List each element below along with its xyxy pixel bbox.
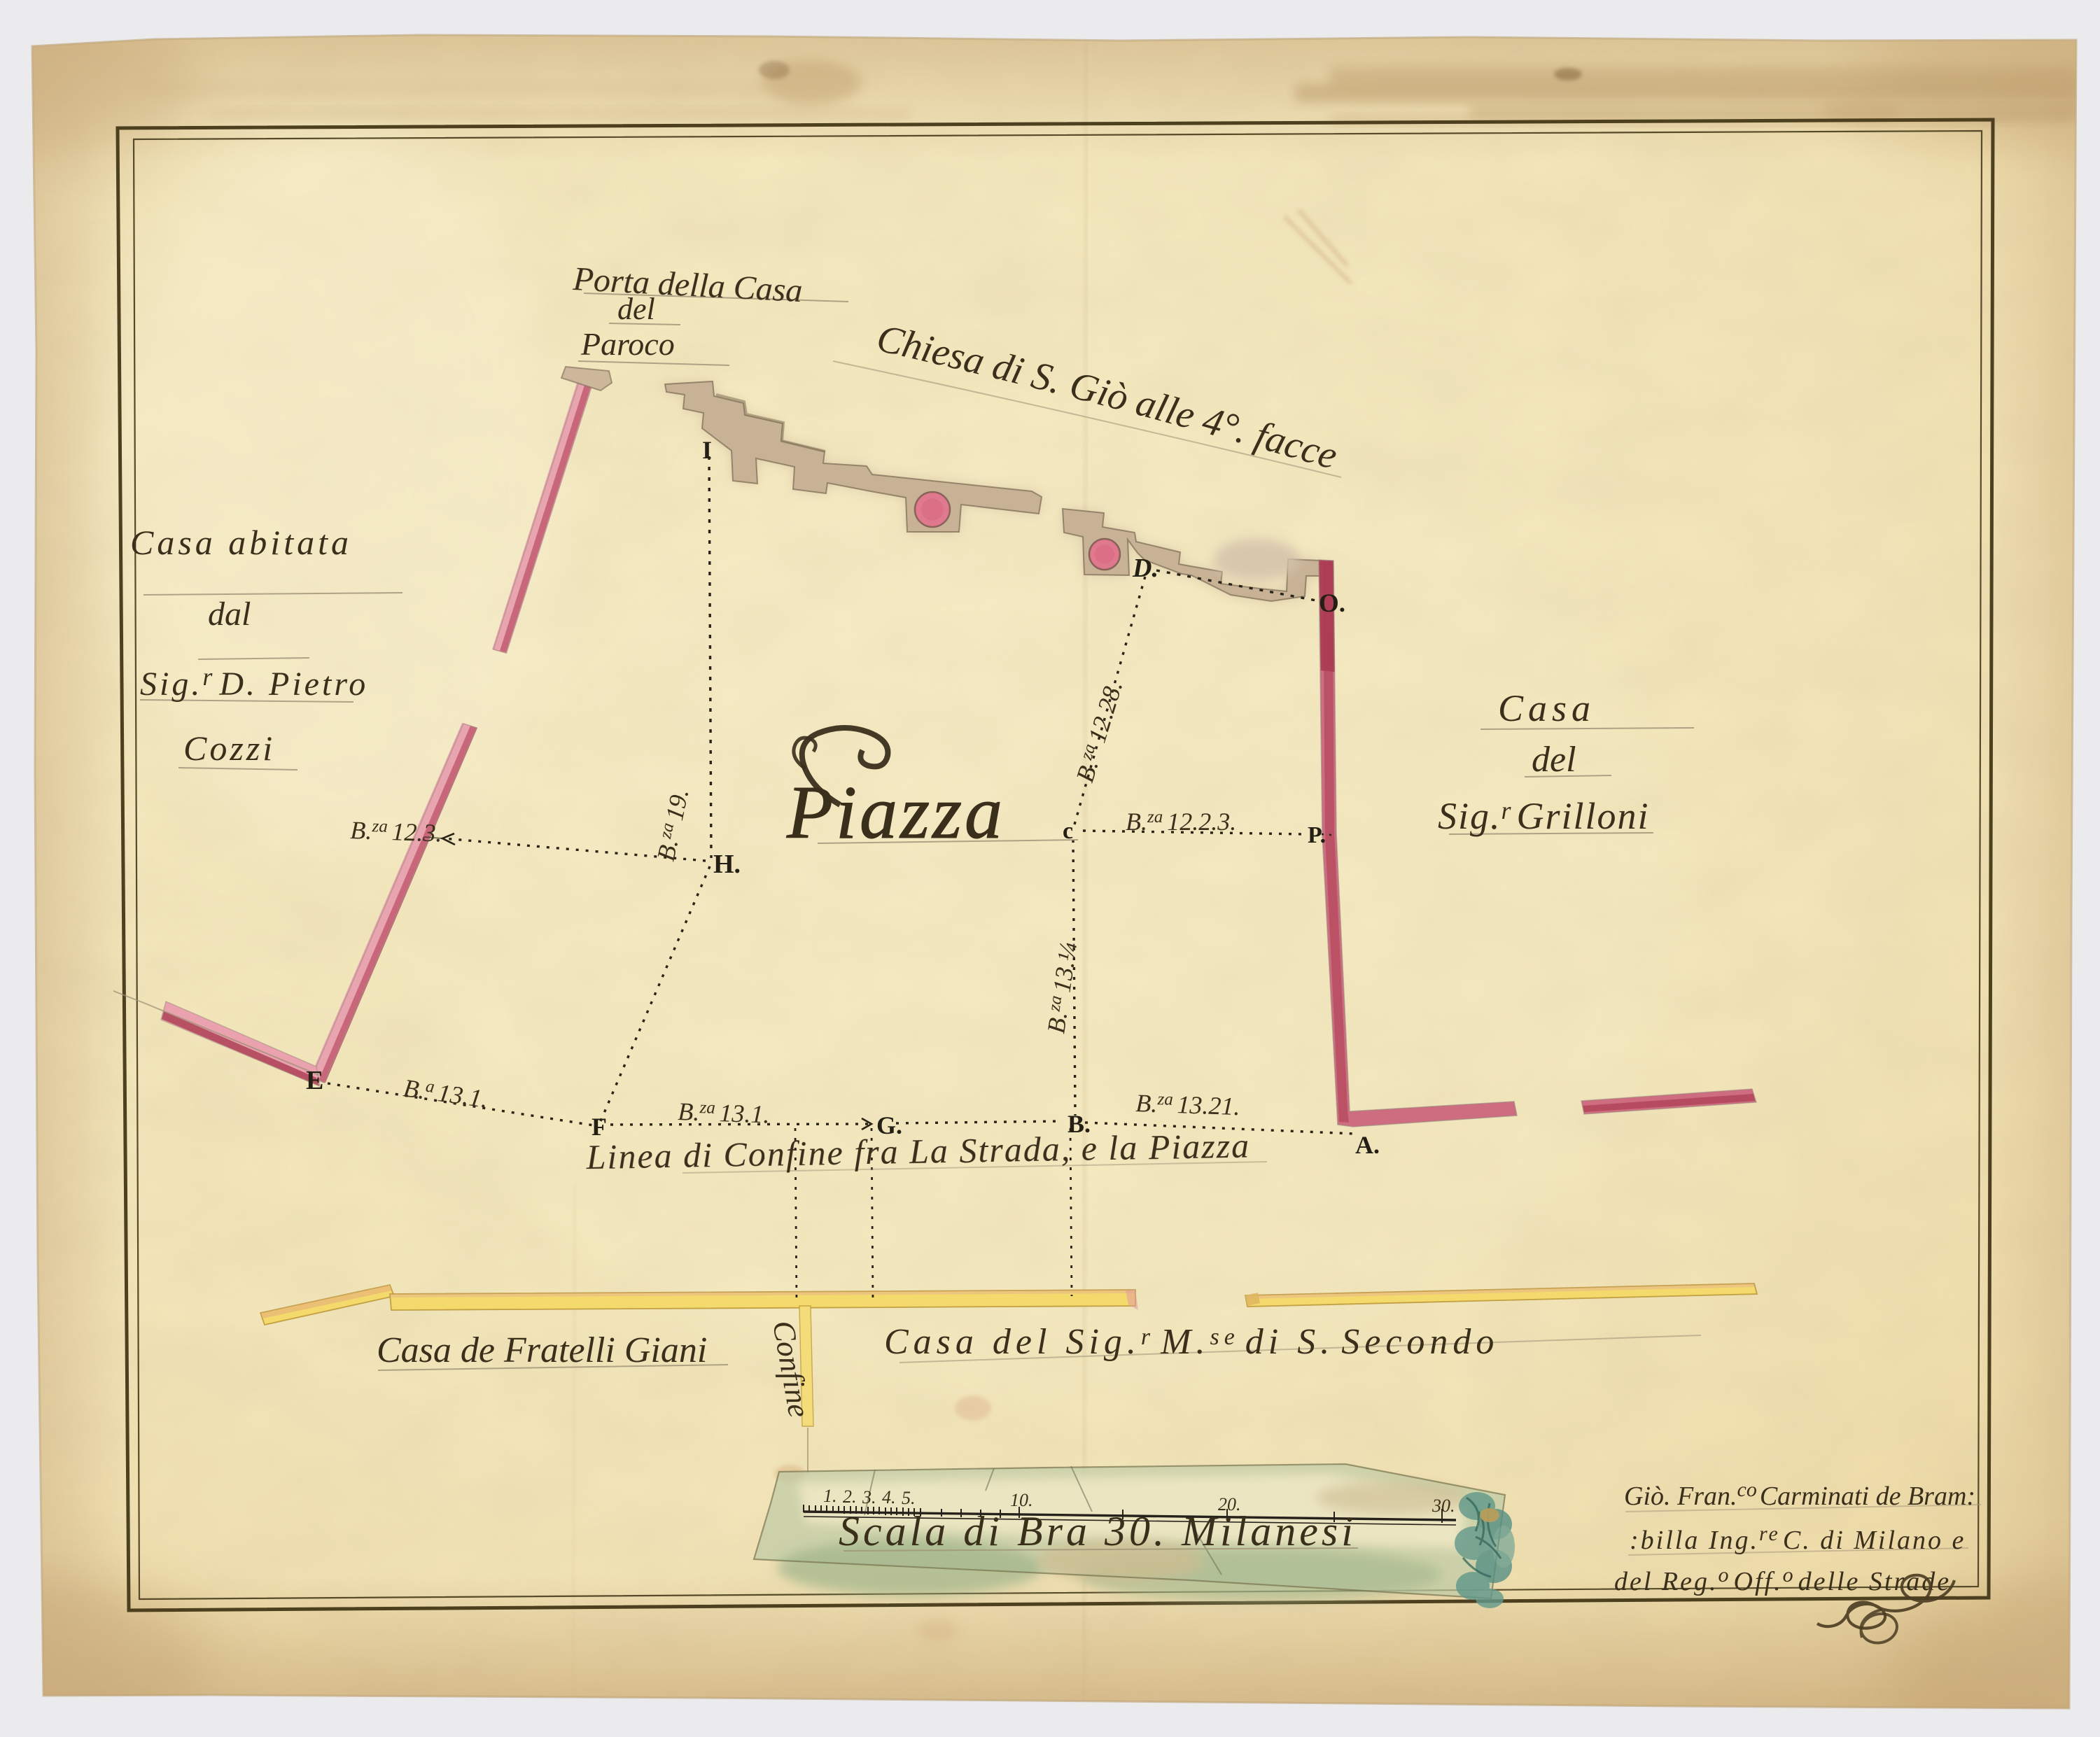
svg-text:dal: dal (208, 596, 251, 633)
svg-text:2.: 2. (843, 1486, 857, 1507)
svg-text:1.: 1. (823, 1486, 837, 1506)
svg-text:H.: H. (713, 850, 741, 879)
svg-text:Sig.rD. Pietro: Sig.rD. Pietro (140, 663, 368, 703)
svg-text:B.za12.2.3.: B.za12.2.3. (1126, 808, 1236, 836)
svg-text:4.: 4. (882, 1487, 896, 1507)
svg-text:P.: P. (1308, 822, 1326, 848)
svg-text:A.: A. (1355, 1131, 1380, 1159)
svg-text:10.: 10. (1010, 1490, 1033, 1510)
svg-text:30.: 30. (1431, 1496, 1455, 1516)
svg-text:B.za13.1.: B.za13.1. (678, 1097, 771, 1129)
svg-text:del: del (1532, 740, 1576, 780)
svg-text:Cozzi: Cozzi (183, 729, 275, 768)
svg-text:Casa del Sig.rM.sedi S.Secondo: Casa del Sig.rM.sedi S.Secondo (884, 1322, 1499, 1362)
svg-text:Casa: Casa (1498, 687, 1595, 729)
svg-text:Paroco: Paroco (580, 326, 675, 362)
svg-text:F: F (591, 1113, 607, 1141)
svg-text:Scala di Bra 30. Milanesi: Scala di Bra 30. Milanesi (839, 1508, 1357, 1554)
svg-text::billa Ing.reC. di Milano e: :billa Ing.reC. di Milano e (1630, 1522, 1966, 1555)
svg-text:del: del (617, 292, 655, 326)
svg-text:E: E (306, 1066, 323, 1095)
svg-text:c: c (1063, 818, 1073, 844)
svg-text:del Reg.oOff.odelle Strade: del Reg.oOff.odelle Strade (1614, 1563, 1951, 1596)
svg-text:B.za13.21.: B.za13.21. (1135, 1089, 1241, 1120)
svg-text:Casa de Fratelli Giani: Casa de Fratelli Giani (377, 1330, 707, 1370)
svg-text:Giò. Fran.coCarminati de Bram:: Giò. Fran.coCarminati de Bram: (1624, 1478, 1975, 1511)
svg-text:G.: G. (876, 1111, 902, 1139)
svg-text:3.: 3. (862, 1487, 876, 1507)
svg-text:O.: O. (1319, 589, 1345, 618)
svg-text:B.za12.3.: B.za12.3. (350, 816, 443, 848)
svg-text:B.: B. (1067, 1110, 1091, 1138)
svg-text:Piazza: Piazza (786, 771, 1005, 855)
svg-text:Sig.rGrilloni: Sig.rGrilloni (1438, 795, 1650, 837)
svg-text:Casa abitata: Casa abitata (130, 523, 352, 562)
svg-text:5.: 5. (902, 1488, 916, 1508)
svg-text:I: I (702, 436, 712, 464)
svg-text:D.: D. (1132, 554, 1158, 583)
